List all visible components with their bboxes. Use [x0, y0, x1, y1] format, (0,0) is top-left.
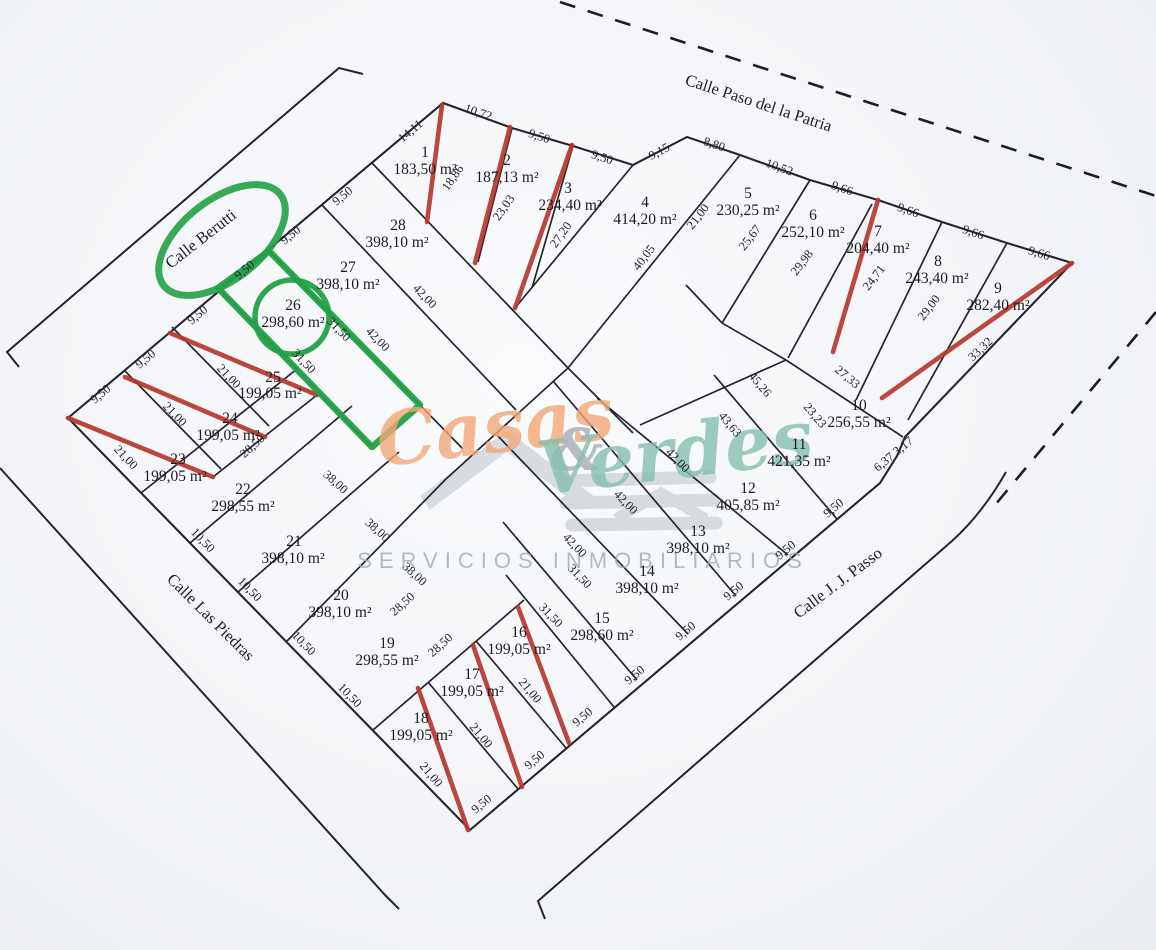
dashed-boundary-right — [995, 312, 1156, 505]
lot-25-number: 25 — [265, 369, 281, 386]
lot-7-number: 7 — [874, 223, 882, 240]
lot-13-number: 13 — [690, 523, 706, 540]
lot-9-number: 9 — [994, 280, 1002, 297]
dimension-label-21: 40,05 — [630, 242, 658, 273]
lot-28-number: 28 — [390, 217, 406, 234]
lot-15-area: 298,60 m² — [570, 627, 634, 644]
dimension-label-58: 9,50 — [570, 705, 596, 730]
lot-19-area: 298,55 m² — [355, 652, 419, 669]
dimension-label-10: 9,15 — [646, 140, 672, 163]
lot-3-number: 3 — [564, 180, 572, 197]
lot-16-number: 16 — [511, 624, 527, 641]
lot-22-area: 298,55 m² — [211, 498, 275, 515]
lot-24-number: 24 — [222, 410, 238, 427]
lot-10-area: 256,55 m² — [827, 414, 891, 431]
dimension-label-53: 9,50 — [821, 496, 847, 521]
street-label-paso-del-la-patria: Calle Paso del la Patria — [683, 70, 835, 136]
lot-28-area: 398,10 m² — [365, 234, 429, 251]
dimension-label-27: 27,33 — [832, 363, 863, 392]
lot-27-number: 27 — [340, 259, 356, 276]
dimension-label-24: 29,98 — [788, 247, 816, 278]
lot-1-number: 1 — [421, 144, 429, 161]
lot-27-area: 398,10 m² — [316, 276, 380, 293]
lot-18-area: 199,05 m² — [389, 727, 453, 744]
dimension-label-7: 10,72 — [463, 101, 494, 123]
lot-5-area: 230,25 m² — [716, 202, 780, 219]
lot-11-area: 421,35 m² — [767, 453, 831, 470]
lot-4-area: 414,20 m² — [613, 211, 677, 228]
lot-2-number: 2 — [503, 152, 511, 169]
lot-10-number: 10 — [851, 397, 867, 414]
dimension-label-51: 21,00 — [467, 720, 496, 751]
lot-9-area: 282,40 m² — [966, 297, 1030, 314]
lot-21-number: 21 — [286, 533, 302, 550]
dimension-label-15: 9,66 — [961, 222, 986, 242]
dimension-label-25: 24,71 — [860, 262, 888, 293]
lot-12-area: 405,85 m² — [716, 497, 780, 514]
plan-drawing: Casas & Verdes SERVICIOS INMOBILIARIOS C… — [0, 0, 1156, 950]
lot-23-area: 199,05 m² — [143, 468, 207, 485]
dimension-label-52: 21,00 — [417, 759, 446, 790]
lot-8-number: 8 — [934, 253, 942, 270]
dimension-label-40: 31,50 — [536, 600, 566, 630]
dimension-label-46: 28,50 — [425, 630, 455, 659]
dimension-label-8: 9,50 — [527, 126, 552, 146]
lot-3-area: 234,40 m² — [538, 197, 602, 214]
lot-5-number: 5 — [744, 185, 752, 202]
dimension-label-12: 10,52 — [764, 156, 795, 179]
dimension-label-41: 38,00 — [321, 467, 351, 496]
lot-8-area: 243,40 m² — [905, 270, 969, 287]
dimension-label-16: 9,66 — [1027, 243, 1052, 263]
lot-22-number: 22 — [235, 481, 251, 498]
jj-passo-far-side — [538, 472, 1006, 919]
dimension-label-9: 9,50 — [590, 147, 615, 167]
dimension-label-11: 8,80 — [702, 134, 727, 154]
lot-2-area: 187,13 m² — [475, 169, 539, 186]
lot-26-area: 298,60 m² — [261, 314, 325, 331]
dimension-label-14: 9,66 — [896, 200, 921, 220]
dimension-label-2: 9,50 — [185, 303, 211, 328]
lot-23-number: 23 — [170, 451, 186, 468]
lot-26-number: 26 — [285, 297, 301, 314]
dimension-label-42: 38,00 — [363, 515, 393, 544]
dimension-label-30: 45,26 — [746, 369, 775, 400]
lot-11-number: 11 — [792, 436, 807, 453]
dimension-label-50: 21,00 — [516, 675, 545, 706]
lot-4-number: 4 — [641, 194, 649, 211]
lot-20-number: 20 — [333, 587, 349, 604]
dimension-label-0: 9,50 — [88, 382, 114, 407]
dimension-label-22: 21,00 — [684, 201, 712, 232]
lot-16-area: 199,05 m² — [487, 641, 551, 658]
dimension-label-5: 9,50 — [330, 184, 356, 209]
lot-6-number: 6 — [809, 207, 817, 224]
lot-13-area: 398,10 m² — [666, 540, 730, 557]
dimension-label-63: 10,50 — [289, 628, 319, 658]
lot-20-area: 398,10 m² — [308, 604, 372, 621]
lot-6-area: 252,10 m² — [781, 224, 845, 241]
dimension-label-45: 28,50 — [387, 589, 417, 618]
lot-12-number: 12 — [740, 480, 756, 497]
lot-17-number: 17 — [464, 666, 480, 683]
dashed-boundary-top — [560, 2, 1156, 196]
lot-25-area: 199,05 m² — [238, 385, 302, 402]
dimension-label-13: 9,66 — [830, 178, 855, 198]
dimension-label-26: 29,00 — [915, 292, 943, 323]
dimension-label-62: 10,50 — [235, 574, 265, 604]
lot-21-area: 398,10 m² — [261, 550, 325, 567]
lot-14-number: 14 — [639, 563, 655, 580]
dimension-label-23: 25,67 — [736, 222, 764, 253]
lot-15-number: 15 — [594, 610, 610, 627]
lot-18-number: 18 — [413, 710, 429, 727]
dimension-label-29: 6,37 3,17 — [871, 434, 916, 475]
lot-14-area: 398,10 m² — [615, 580, 679, 597]
lot-19-number: 19 — [379, 635, 395, 652]
dimension-label-32: 42,00 — [410, 281, 440, 311]
watermark: Casas & Verdes SERVICIOS INMOBILIARIOS — [357, 370, 818, 573]
lot-17-area: 199,05 m² — [440, 683, 504, 700]
lot-7-area: 204,40 m² — [846, 240, 910, 257]
scanned-subdivision-plan: Casas & Verdes SERVICIOS INMOBILIARIOS C… — [0, 0, 1156, 950]
dimension-label-1: 9,50 — [133, 347, 159, 372]
